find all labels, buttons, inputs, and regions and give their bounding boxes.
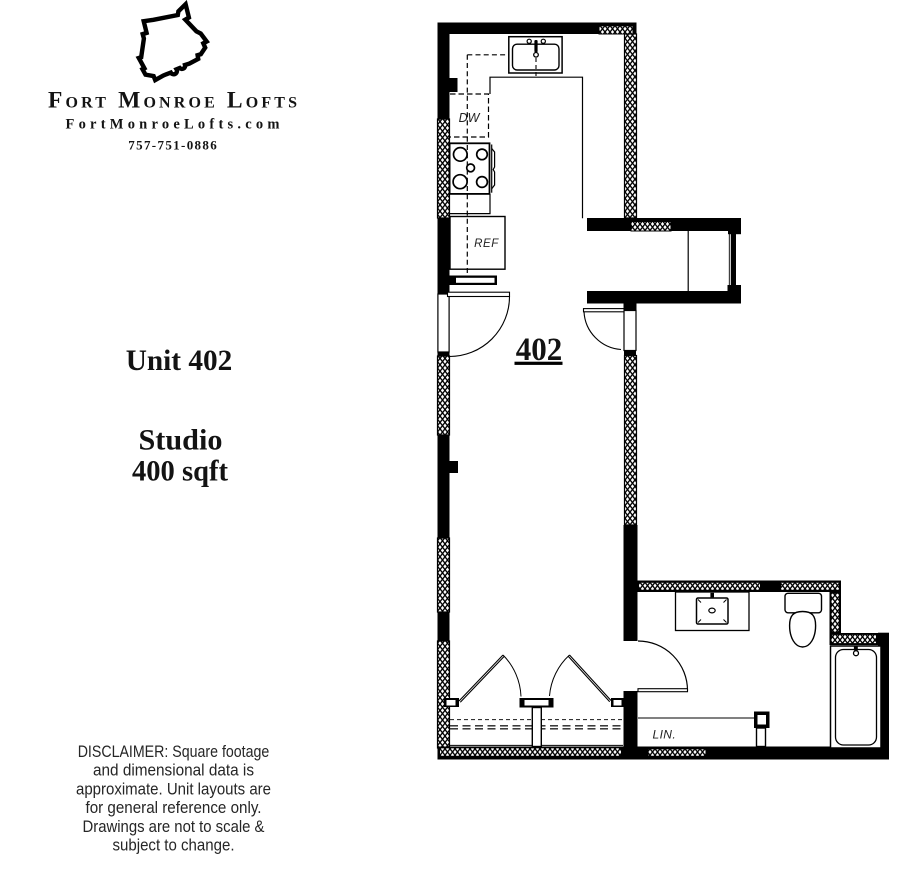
svg-text:approximate. Unit layouts are: approximate. Unit layouts are (76, 779, 271, 798)
svg-text:LIN.: LIN. (653, 728, 677, 742)
svg-text:400 sqft: 400 sqft (132, 455, 228, 488)
svg-text:subject to change.: subject to change. (113, 836, 235, 855)
svg-text:and dimensional data is: and dimensional data is (93, 761, 254, 780)
svg-text:for general reference only.: for general reference only. (86, 798, 262, 817)
svg-text:Drawings are not to scale &: Drawings are not to scale & (83, 817, 266, 836)
svg-text:DW: DW (459, 111, 481, 125)
svg-text:FortMonroeLofts.com: FortMonroeLofts.com (66, 117, 280, 133)
svg-text:REF: REF (474, 238, 499, 250)
svg-text:DISCLAIMER: Square footage: DISCLAIMER: Square footage (78, 742, 270, 761)
svg-text:Fort Monroe Lofts: Fort Monroe Lofts (48, 88, 297, 114)
svg-text:Unit 402: Unit 402 (126, 344, 233, 377)
svg-text:Studio: Studio (139, 424, 223, 457)
svg-text:757-751-0886: 757-751-0886 (128, 138, 217, 153)
